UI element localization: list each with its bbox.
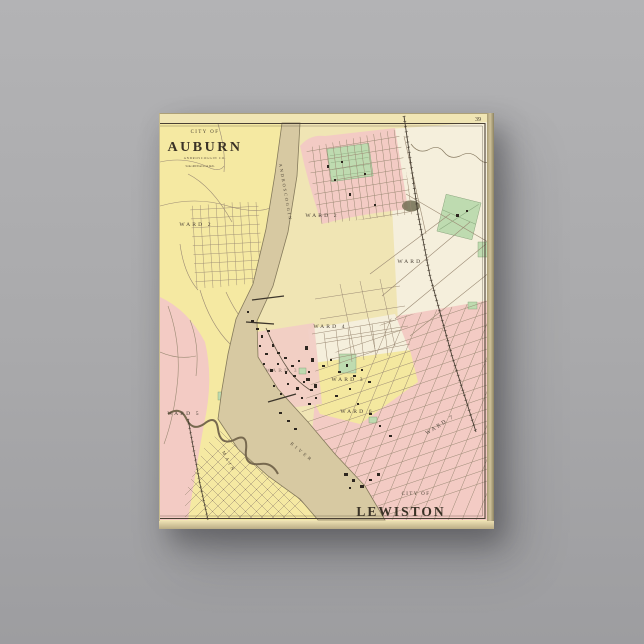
ward-label-lewiston-3: WARD 3 — [331, 377, 364, 383]
lewiston-city-of: CITY OF — [402, 492, 431, 497]
canvas-side-bottom — [159, 521, 494, 529]
ward-label-lewiston-2: WARD 2 — [305, 213, 338, 219]
ward-label-lewiston-6: WARD 6 — [340, 409, 373, 415]
small-green-5 — [468, 302, 477, 309]
canvas-side-right — [487, 113, 494, 522]
auburn-city-of: CITY OF — [191, 130, 220, 135]
ward-label-lewiston-1: WARD 1 — [397, 259, 430, 265]
canvas-print: 39 CITY OF AUBURN ANDROSCOGGIN CO. Scale… — [159, 113, 494, 529]
auburn-county: ANDROSCOGGIN CO. — [184, 156, 226, 160]
ward-label-auburn-2: WARD 2 — [179, 222, 212, 228]
small-green-3 — [299, 368, 306, 374]
product-photo-background: 39 CITY OF AUBURN ANDROSCOGGIN CO. Scale… — [0, 0, 644, 644]
ward-label-auburn-5: WARD 5 — [167, 411, 200, 417]
auburn-name: AUBURN — [168, 140, 243, 155]
ward-label-lewiston-4: WARD 4 — [313, 324, 346, 330]
auburn-lewiston-map: 39 CITY OF AUBURN ANDROSCOGGIN CO. Scale… — [160, 114, 488, 522]
cemetery-green — [327, 143, 373, 182]
ward-label-auburn-3: WARD 3 — [265, 368, 298, 374]
map-canvas-face: 39 CITY OF AUBURN ANDROSCOGGIN CO. Scale… — [159, 113, 487, 521]
page-number: 39 — [475, 117, 481, 123]
small-green-4 — [369, 417, 377, 423]
lewiston-name: LEWISTON — [356, 504, 445, 519]
auburn-scale: Scale 400 Feet to an Inch. — [185, 165, 214, 168]
